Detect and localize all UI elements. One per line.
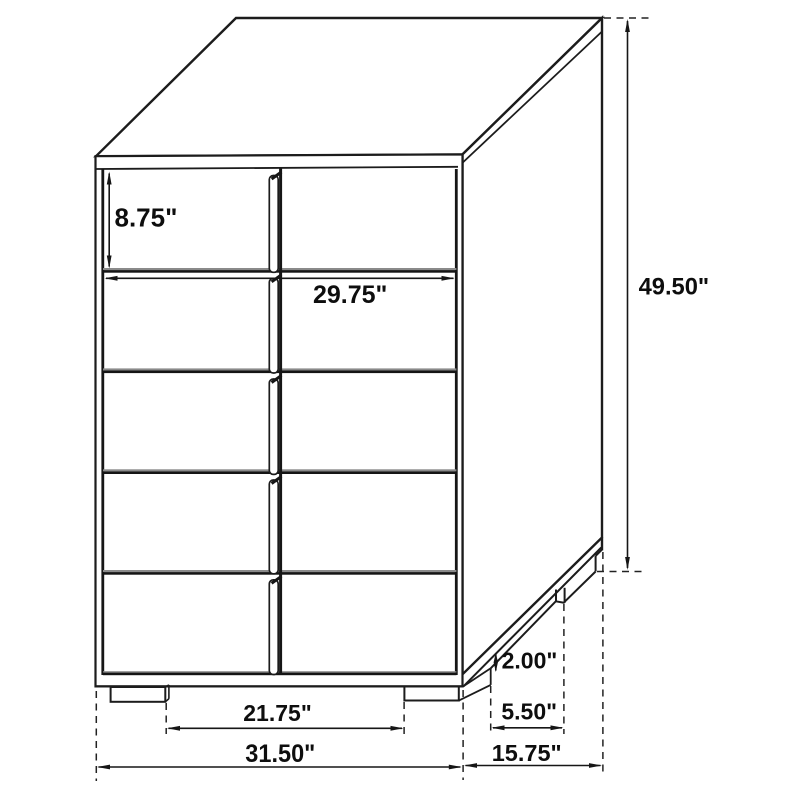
svg-text:49.50": 49.50" [639, 274, 710, 300]
svg-text:8.75": 8.75" [115, 202, 178, 232]
svg-text:31.50": 31.50" [245, 740, 315, 768]
svg-text:5.50": 5.50" [501, 699, 557, 725]
svg-text:29.75": 29.75" [313, 281, 387, 309]
svg-text:21.75": 21.75" [243, 700, 311, 726]
svg-text:2.00": 2.00" [502, 648, 558, 674]
svg-text:15.75": 15.75" [492, 740, 562, 766]
